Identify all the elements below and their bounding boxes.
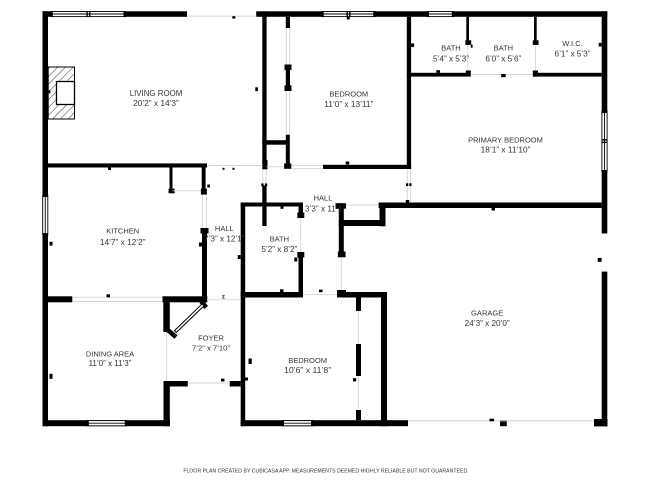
svg-text:10’6” x 11’8”: 10’6” x 11’8” [284,365,331,375]
svg-text:11’0” x 13’11”: 11’0” x 13’11” [324,99,373,109]
svg-text:5’2” x 8’2”: 5’2” x 8’2” [261,245,297,254]
svg-text:18’1” x 11’10”: 18’1” x 11’10” [481,145,531,155]
svg-text:6’1” x 5’3”: 6’1” x 5’3” [555,50,591,59]
svg-text:7’3” x 12’1”: 7’3” x 12’1” [204,234,245,243]
svg-text:BEDROOM: BEDROOM [329,89,368,98]
svg-text:PRIMARY BEDROOM: PRIMARY BEDROOM [468,136,543,145]
svg-text:11’0” x 11’3”: 11’0” x 11’3” [89,359,132,368]
svg-text:BATH: BATH [494,44,513,53]
svg-text:HALL: HALL [215,224,234,233]
svg-text:FLOOR PLAN CREATED BY CUBICASA: FLOOR PLAN CREATED BY CUBICASA APP. MEAS… [183,469,468,475]
svg-text:5’4” x 5’3”: 5’4” x 5’3” [433,54,469,63]
svg-text:LIVING ROOM: LIVING ROOM [130,89,183,98]
svg-text:6’0” x 5’6”: 6’0” x 5’6” [485,54,521,63]
svg-text:14’7” x 12’2”: 14’7” x 12’2” [100,237,146,247]
svg-text:KITCHEN: KITCHEN [106,227,139,236]
svg-text:3’3” x 11’1”: 3’3” x 11’1” [305,205,345,214]
svg-text:FOYER: FOYER [198,333,224,342]
svg-text:HALL: HALL [314,193,333,202]
svg-text:24’3” x 20’0”: 24’3” x 20’0” [465,319,510,328]
svg-text:GARAGE: GARAGE [471,309,503,318]
svg-text:BATH: BATH [441,44,460,53]
svg-text:20’2” x 14’3”: 20’2” x 14’3” [133,98,179,108]
svg-text:DINING AREA: DINING AREA [86,349,134,358]
svg-text:7’2” x 7’10”: 7’2” x 7’10” [192,343,230,352]
svg-text:BATH: BATH [270,235,289,244]
svg-text:W.I.C.: W.I.C. [562,39,582,48]
